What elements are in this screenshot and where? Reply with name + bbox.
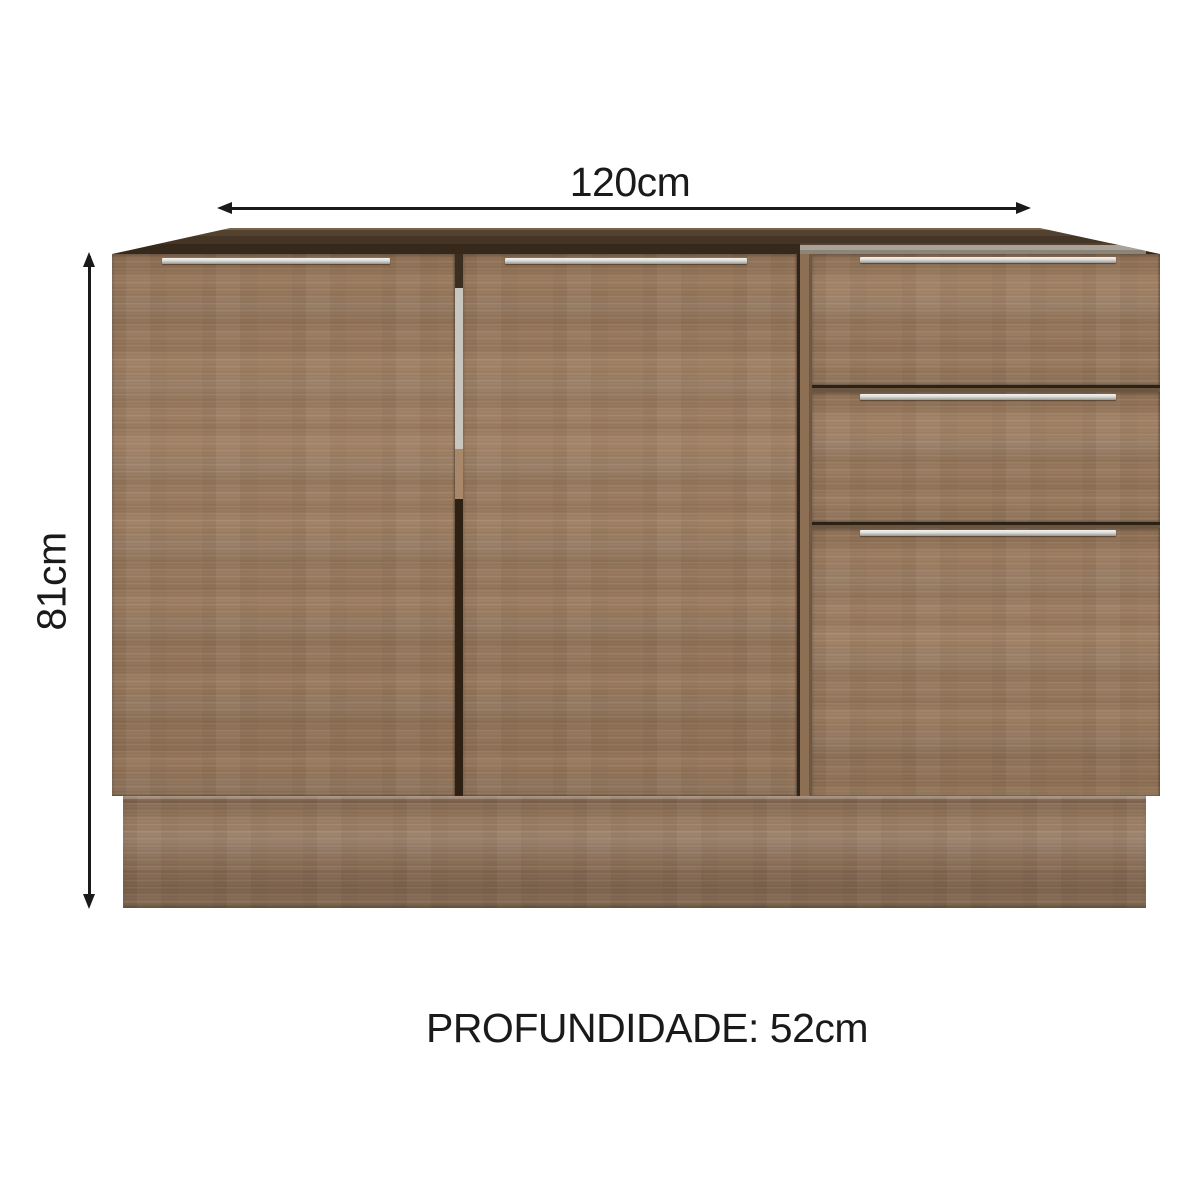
drawer-3-handle <box>860 530 1116 536</box>
door-gap <box>455 254 463 796</box>
arrowhead-down-icon <box>83 894 95 909</box>
base-plinth <box>123 796 1146 908</box>
cabinet-top-rim <box>112 228 1160 254</box>
arrowhead-left-icon <box>217 202 232 214</box>
width-dimension-label: 120cm <box>230 160 1030 205</box>
drawer-stack <box>812 254 1160 796</box>
door-left-handle <box>162 258 390 264</box>
drawer-2 <box>812 392 1160 522</box>
arrowhead-up-icon <box>83 252 95 267</box>
drawer-1-handle <box>860 257 1116 263</box>
depth-label: PROFUNDIDADE: 52cm <box>47 1006 1200 1051</box>
door-center <box>463 254 797 796</box>
door-center-handle <box>505 258 747 264</box>
drawer-2-handle <box>860 394 1116 400</box>
drawer-unit-top-edge <box>800 243 1146 254</box>
height-dimension-label: 81cm <box>14 255 90 907</box>
section-divider <box>797 254 812 796</box>
drawer-3 <box>812 528 1160 796</box>
width-dimension-arrow <box>227 207 1019 210</box>
product-dimension-diagram: 120cm 81cm <box>0 0 1200 1200</box>
door-left <box>112 254 455 796</box>
arrowhead-right-icon <box>1016 202 1031 214</box>
base-plinth-shading <box>123 796 1146 908</box>
drawer-1 <box>812 254 1160 385</box>
drawer-gap <box>812 385 1160 392</box>
cabinet-front <box>112 254 1160 796</box>
height-dimension-arrow <box>88 256 91 902</box>
